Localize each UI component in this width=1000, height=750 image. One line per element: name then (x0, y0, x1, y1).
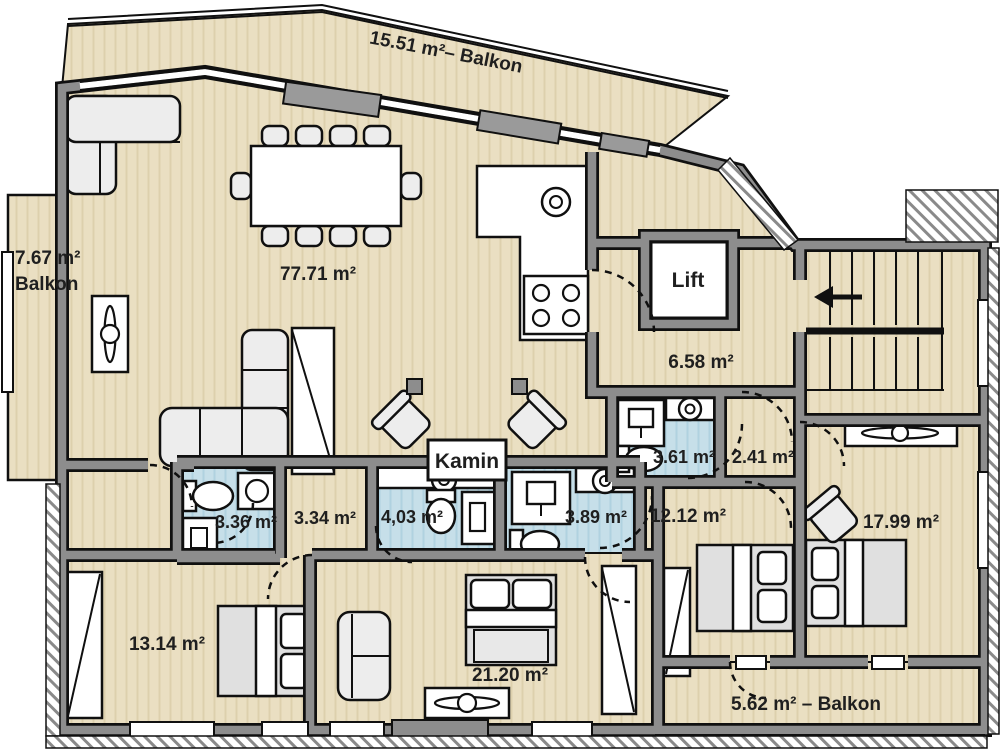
radiator-bed-mid (425, 688, 509, 718)
bed-right (806, 540, 906, 626)
fireplace: Kamin (428, 440, 506, 480)
column-right (512, 379, 527, 394)
room-label-balcony-left-1: 7.67 m² (15, 248, 80, 269)
column-left (407, 379, 422, 394)
fireplace-label: Kamin (435, 450, 499, 473)
window-balcony-wall-1 (736, 656, 766, 669)
floor-plan-canvas: Kamin 15.51 m²– Balkon 7.67 m² Balkon 77… (0, 0, 1000, 750)
room-label-bath-d: 3.61 m² (653, 447, 715, 467)
closet-living (292, 328, 334, 474)
loveseat-bed-mid (338, 612, 390, 700)
room-label-bed-center: 12.12 m² (650, 506, 726, 527)
sink-icon (238, 473, 276, 509)
window-bottom-2 (262, 722, 308, 737)
room-label-bath-a: 3.36 m² (215, 512, 277, 532)
wardrobe-bed-left (66, 572, 102, 718)
room-label-balcony-bottom: 5.62 m² – Balkon (731, 694, 881, 715)
sink-icon (666, 398, 716, 420)
room-label-hall-main: 6.58 m² (668, 352, 733, 373)
washer-icon (512, 472, 570, 524)
window-bottom-4 (532, 722, 592, 737)
sink-icon (542, 188, 570, 216)
stove-icon (524, 276, 588, 334)
window-left-balcony (2, 252, 13, 392)
room-label-bath-c: 3.89 m² (565, 507, 627, 527)
room-label-hall-right: 2.41 m² (732, 447, 794, 467)
bed-left (218, 606, 312, 696)
room-label-lift: Lift (672, 269, 705, 292)
wardrobe-bed-mid (602, 566, 636, 714)
room-label-living: 77.71 m² (280, 264, 356, 285)
room-label-bed-right: 17.99 m² (863, 512, 939, 533)
shower-icon (462, 492, 498, 544)
window-balcony-wall-2 (872, 656, 904, 669)
room-label-bed-mid: 21.20 m² (472, 665, 548, 686)
room-label-bed-left: 13.14 m² (129, 634, 205, 655)
balcony-door-left (92, 296, 128, 372)
bed-mid (466, 575, 556, 665)
room-label-balcony-left-2: Balkon (15, 274, 78, 295)
window-bottom-3 (330, 722, 384, 737)
floor-plan-page: Kamin 15.51 m²– Balkon 7.67 m² Balkon 77… (0, 0, 1000, 750)
room-label-bath-b: 4,03 m² (381, 507, 443, 527)
window-bottom-1 (130, 722, 214, 737)
washer-icon (618, 400, 664, 446)
bed-center (697, 545, 793, 631)
room-label-hall-small: 3.34 m² (294, 508, 356, 528)
